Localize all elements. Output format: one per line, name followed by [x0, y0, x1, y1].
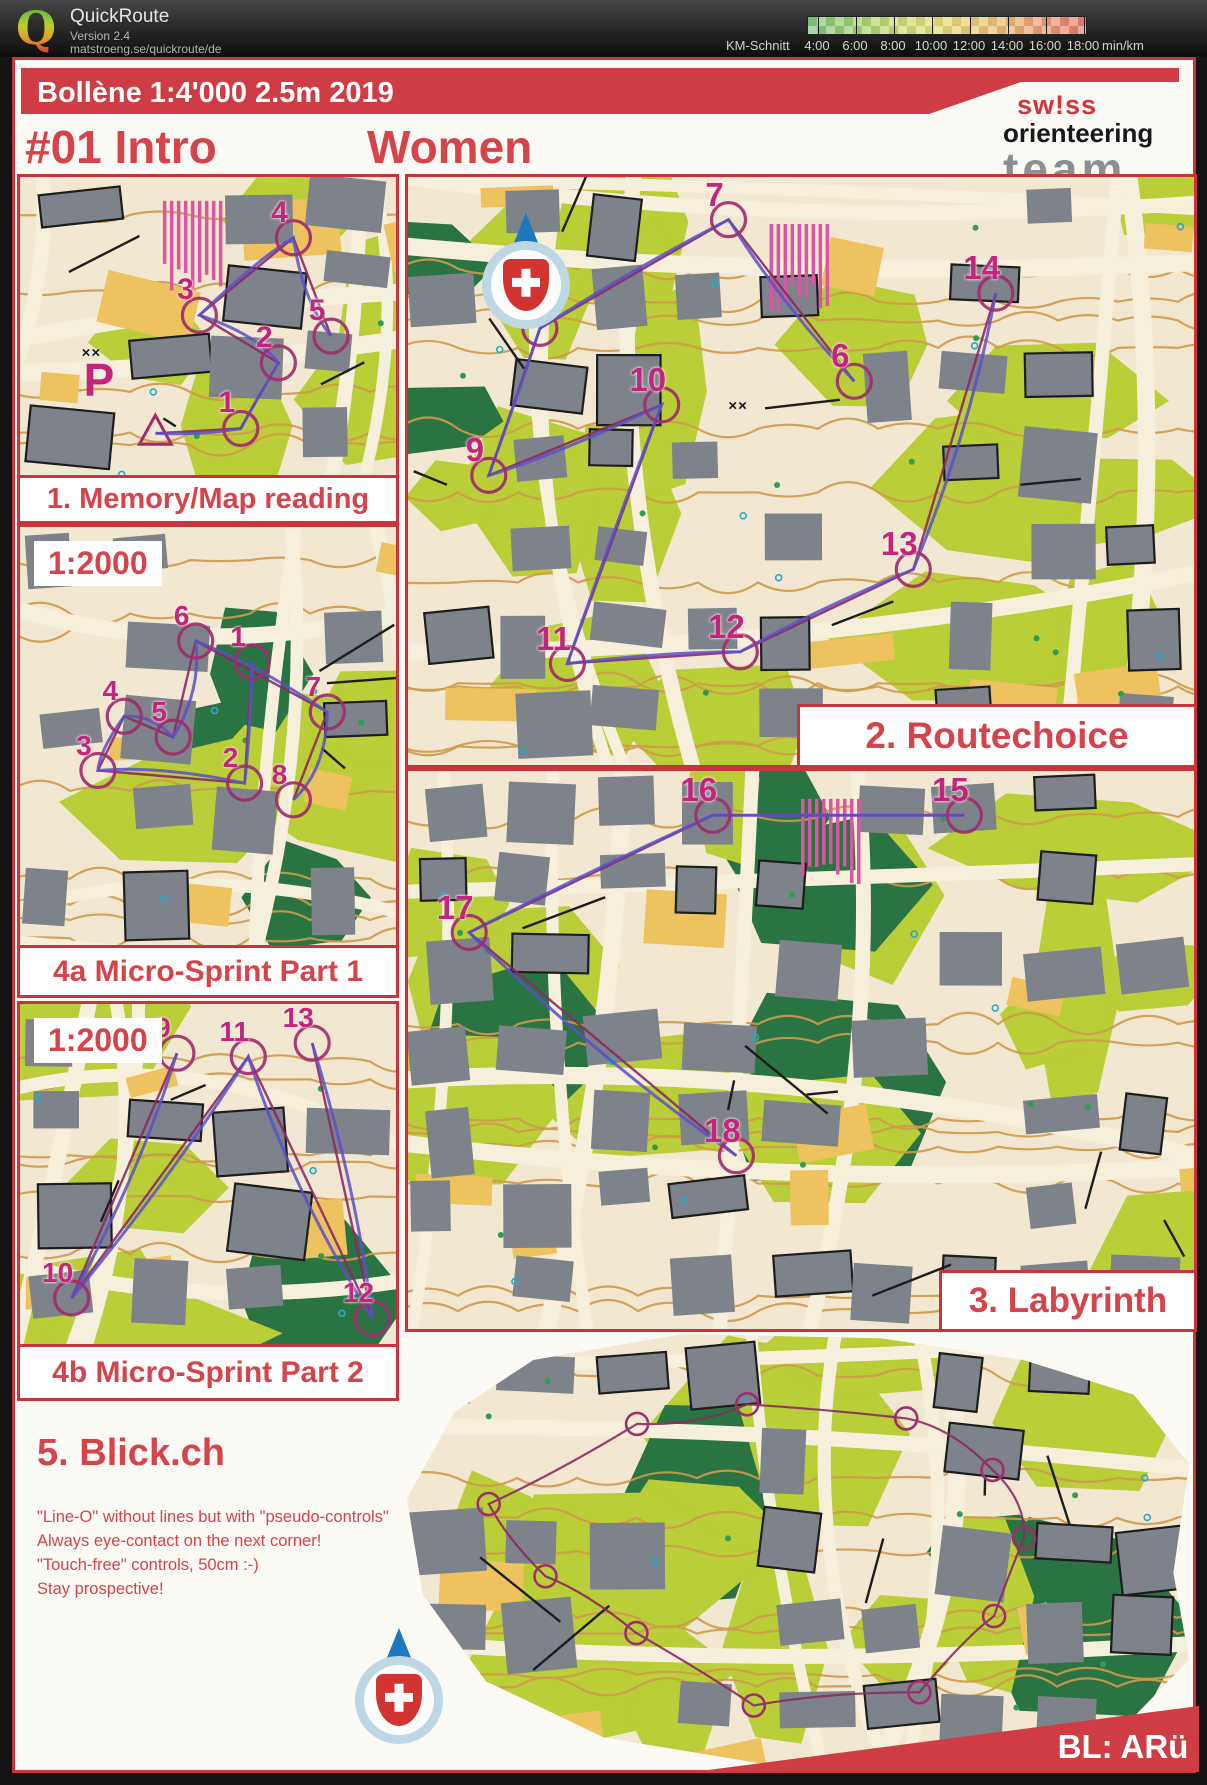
panel-label: 4b Micro-Sprint Part 2 — [20, 1344, 396, 1398]
shield-crest — [376, 1674, 422, 1726]
panel-label: 1. Memory/Map reading — [20, 475, 396, 521]
scale-tick-line — [818, 17, 819, 34]
scale-tick-line — [1046, 17, 1047, 34]
scale-tick-label: 12:00 — [953, 38, 986, 53]
panel-label-text: 4a Micro-Sprint Part 1 — [53, 955, 363, 989]
control-number: 7 — [705, 178, 723, 211]
scale-tick-line — [1008, 17, 1009, 34]
credit-text: BL: ARü — [1058, 1728, 1189, 1765]
quickroute-logo-icon: Q — [16, 2, 56, 54]
control-number: 8 — [272, 761, 288, 789]
shield-ring — [482, 241, 570, 329]
map-sprint1[interactable]: 1:2000 12345678 — [20, 527, 396, 945]
control-number: 9 — [466, 434, 484, 467]
banner-title: Bollène 1:4'000 2.5m 2019 — [37, 77, 394, 109]
scale-tick-label: 6:00 — [842, 38, 867, 53]
control-number: 3 — [76, 732, 92, 760]
scale-tick-line — [932, 17, 933, 34]
panel-routechoice: 67891011121314×× 2. Routechoice — [405, 174, 1197, 768]
scale-tick-label: 8:00 — [880, 38, 905, 53]
scale-tick-line — [856, 17, 857, 34]
text-line: "Touch-free" controls, 50cm :-) — [37, 1553, 397, 1577]
pace-color-scale — [807, 16, 1087, 35]
app-version: Version 2.4 — [70, 29, 130, 43]
control-number: 6 — [831, 339, 849, 372]
panel-label: 3. Labyrinth — [939, 1270, 1197, 1332]
map-mark: ×× — [728, 398, 748, 415]
scale-tick-line — [894, 17, 895, 34]
logo-swiss: sw!ss — [1003, 92, 1185, 119]
control-number: 4 — [102, 677, 118, 705]
swiss-shield-icon — [478, 213, 574, 335]
control-number: 7 — [305, 673, 321, 701]
panel-label-text: 2. Routechoice — [865, 715, 1128, 757]
category-title: Women — [367, 120, 532, 174]
control-number: 14 — [963, 251, 1000, 284]
panel-label: 2. Routechoice — [797, 704, 1197, 768]
blick-section: 5. Blick.ch "Line-O" without lines but w… — [37, 1432, 397, 1601]
control-number: 18 — [704, 1114, 741, 1147]
pace-scale-ticks: 4:006:008:0010:0012:0014:0016:0018:00 — [807, 38, 1093, 54]
panel-label: 4a Micro-Sprint Part 1 — [20, 945, 396, 995]
control-number: 13 — [881, 528, 918, 561]
control-number: 10 — [42, 1259, 73, 1287]
scale-tick-line — [1084, 17, 1085, 34]
control-number: 15 — [932, 774, 969, 807]
text-line: Always eye-contact on the next corner! — [37, 1529, 397, 1553]
scale-note: 1:2000 — [34, 1018, 162, 1063]
control-number: 16 — [680, 774, 717, 807]
pace-scale-label: KM-Schnitt — [726, 38, 790, 53]
blick-notes: "Line-O" without lines but with "pseudo-… — [37, 1505, 397, 1601]
map-document: Bollène 1:4'000 2.5m 2019 #01 Intro Wome… — [12, 57, 1196, 1773]
control-number: 5 — [151, 698, 167, 726]
control-number: 17 — [437, 891, 474, 924]
map-sprint2[interactable]: 1:2000 910111213 — [20, 1004, 396, 1344]
panel-micro-sprint-1: 1:2000 12345678 4a Micro-Sprint Part 1 — [17, 524, 399, 998]
panel-memory-map-reading: 12345P×× 1. Memory/Map reading — [17, 174, 399, 524]
scale-tick-label: 4:00 — [804, 38, 829, 53]
control-number: 10 — [629, 363, 666, 396]
control-number: 11 — [536, 622, 571, 655]
panel-labyrinth: 15161718 3. Labyrinth — [405, 768, 1197, 1332]
blick-heading: 5. Blick.ch — [37, 1432, 397, 1475]
scale-tick-label: 10:00 — [915, 38, 948, 53]
text-line: "Line-O" without lines but with "pseudo-… — [37, 1505, 397, 1529]
control-number: 4 — [271, 198, 288, 228]
map-labyrinth[interactable]: 15161718 — [408, 771, 1194, 1329]
map-mark: ×× — [82, 344, 102, 361]
panel-micro-sprint-2: 1:2000 910111213 4b Micro-Sprint Part 2 — [17, 1001, 399, 1401]
control-number: 2 — [256, 323, 273, 353]
app-titlebar: Q QuickRoute Version 2.4 matstroeng.se/q… — [0, 0, 1207, 57]
text-line: Stay prospective! — [37, 1577, 397, 1601]
shield-crest — [503, 259, 549, 311]
scale-tick-label: 18:00 — [1067, 38, 1100, 53]
scale-note: 1:2000 — [34, 541, 162, 586]
course-overlay — [408, 771, 1194, 1329]
panel-label-text: 4b Micro-Sprint Part 2 — [52, 1356, 364, 1390]
control-number: 5 — [309, 296, 326, 326]
app-name: QuickRoute — [70, 6, 169, 28]
panel-label-text: 1. Memory/Map reading — [47, 483, 369, 516]
control-number: 3 — [177, 275, 194, 305]
panel-label-text: 3. Labyrinth — [969, 1281, 1167, 1321]
app-url: matstroeng.se/quickroute/de — [70, 42, 221, 56]
course-title: #01 Intro — [25, 120, 217, 174]
control-number: 12 — [708, 610, 745, 643]
scale-tick-label: 16:00 — [1029, 38, 1062, 53]
scale-tick-line — [970, 17, 971, 34]
control-number: 13 — [283, 1004, 314, 1032]
control-number: 6 — [174, 602, 190, 630]
swiss-shield-icon — [351, 1628, 447, 1750]
control-number: 11 — [220, 1018, 250, 1046]
control-number: 1 — [230, 623, 246, 651]
control-number: 2 — [223, 744, 239, 772]
shield-ring — [355, 1656, 443, 1744]
control-number: 1 — [218, 388, 235, 418]
course-overlay — [20, 177, 396, 475]
control-number: 12 — [343, 1280, 374, 1308]
map-memory[interactable]: 12345P×× — [20, 177, 396, 475]
scale-tick-label: 14:00 — [991, 38, 1024, 53]
pace-unit-label: min/km — [1102, 38, 1144, 53]
credit-banner: BL: ARü — [653, 1690, 1199, 1772]
